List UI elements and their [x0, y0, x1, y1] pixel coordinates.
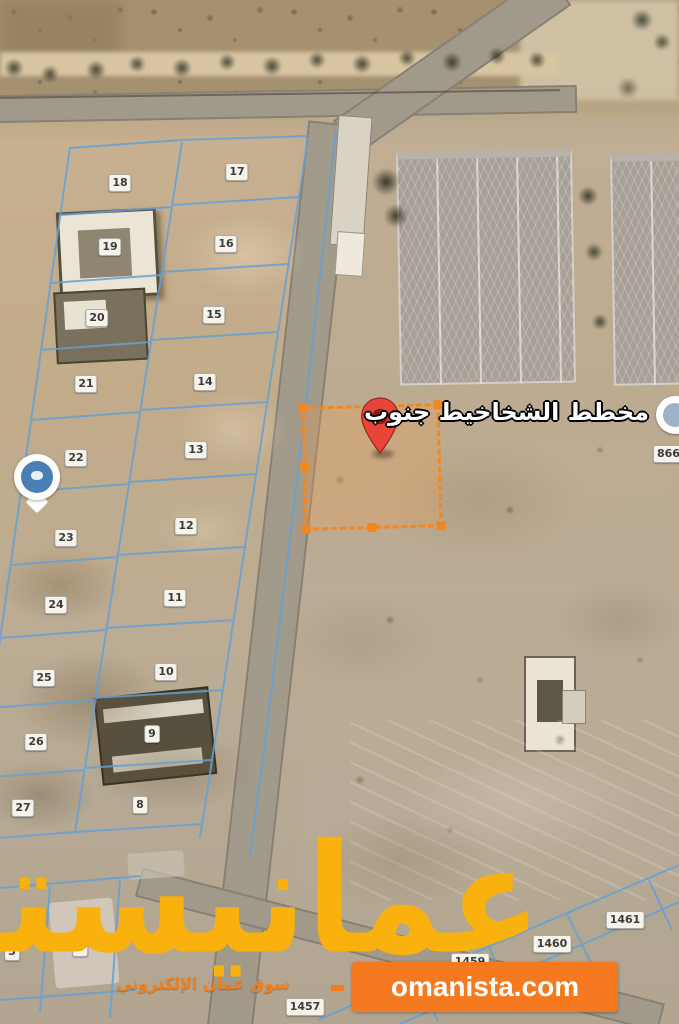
plot-edge-handle	[367, 523, 376, 532]
plot-corner-handle	[436, 521, 445, 530]
watermark-tagline-text: سوق عمان الإلكتروني	[98, 974, 308, 993]
plan-label: مخطط الشخاخيط جنوب	[393, 394, 649, 430]
plot-edge-handle	[300, 462, 309, 471]
plot-corner-handle	[301, 525, 310, 534]
marker-glyph	[31, 471, 43, 480]
site-url-badge: omanista.com	[352, 962, 618, 1012]
satellite-map: 1817191620152114221323122411251026927856…	[0, 0, 679, 1024]
plot-corner-handle	[298, 404, 307, 413]
watermark-dash	[331, 985, 344, 991]
secondary-map-marker[interactable]	[14, 454, 60, 516]
watermark-brand-text: عمانيستا	[100, 824, 542, 975]
place-icon-glyph	[663, 403, 679, 427]
plot-number-badge: 866	[653, 445, 679, 463]
